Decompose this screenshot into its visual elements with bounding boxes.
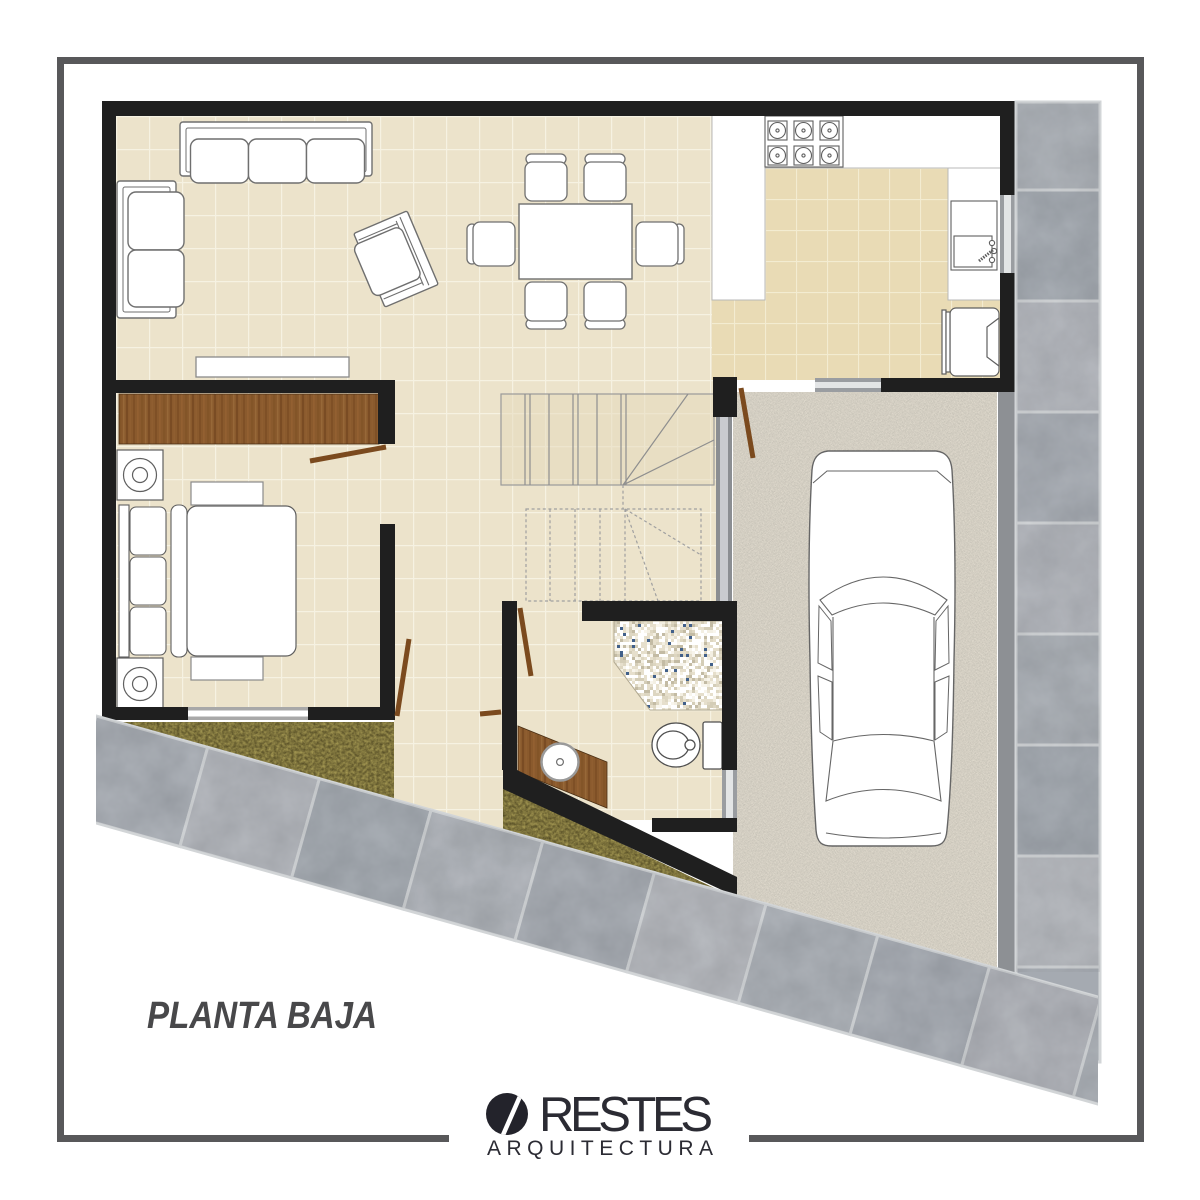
svg-text:PLANTA BAJA: PLANTA BAJA	[147, 995, 377, 1037]
svg-text:ARQUITECTURA: ARQUITECTURA	[487, 1137, 713, 1160]
svg-text:RESTES: RESTES	[539, 1088, 713, 1142]
